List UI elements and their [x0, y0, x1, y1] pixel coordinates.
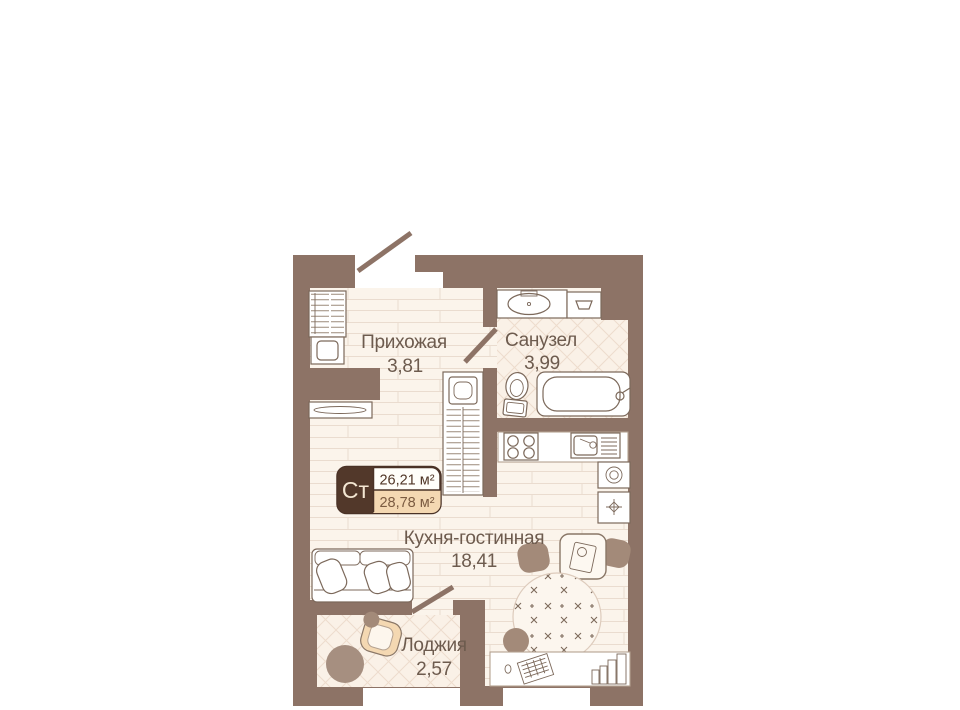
desk-icon [490, 652, 630, 686]
badge-area-with-balcony: 28,78 м² [379, 495, 434, 511]
badge-code-text: Ст [342, 477, 370, 503]
round-pouf-icon [326, 645, 364, 683]
wall-under-bathroom [483, 418, 643, 432]
room-label-loggia: Лоджия [401, 635, 467, 656]
room-label-kitchen-living: Кухня-гостинная [404, 528, 544, 549]
tall-wardrobe-icon [443, 372, 483, 495]
room-area-bathroom: 3,99 [524, 353, 560, 374]
bench-icon [311, 337, 344, 364]
room-area-kitchen-living: 18,41 [451, 551, 497, 572]
room-area-hallway: 3,81 [387, 356, 423, 377]
apartment-type-badge: Ст 26,21 м² 28,78 м² [338, 467, 441, 513]
console-shelf-icon [309, 402, 372, 418]
pouf-icon [503, 628, 529, 654]
washing-machine-icon [598, 462, 630, 488]
sofa-icon [312, 549, 413, 602]
wall-hall-kitchen [483, 368, 497, 497]
room-area-loggia: 2,57 [416, 659, 452, 680]
sink-icon [497, 290, 567, 318]
wall-left-protrusion [293, 368, 380, 400]
floorplan-canvas: Прихожая 3,81 Санузел 3,99 Кухня-гостинн… [0, 0, 960, 710]
badge-area-total: 26,21 м² [379, 473, 434, 489]
wall-loggia-top-right [453, 600, 485, 615]
floorplan-svg: Прихожая 3,81 Санузел 3,99 Кухня-гостинн… [0, 0, 960, 710]
basin-icon [567, 292, 601, 318]
wall-hall-bath-top [483, 288, 497, 327]
bathtub-icon [537, 372, 630, 416]
fridge-icon [598, 492, 630, 523]
loggia-window-opening [363, 688, 460, 706]
living-window-opening [503, 688, 590, 706]
wall-bathroom-corner [601, 288, 628, 320]
room-label-bathroom: Санузел [505, 330, 577, 351]
wall-loggia-left [305, 615, 317, 687]
dining-table-icon [560, 534, 606, 579]
wardrobe-icon [309, 291, 346, 337]
entrance-opening-lintel [415, 272, 443, 288]
room-label-hallway: Прихожая [361, 332, 447, 353]
